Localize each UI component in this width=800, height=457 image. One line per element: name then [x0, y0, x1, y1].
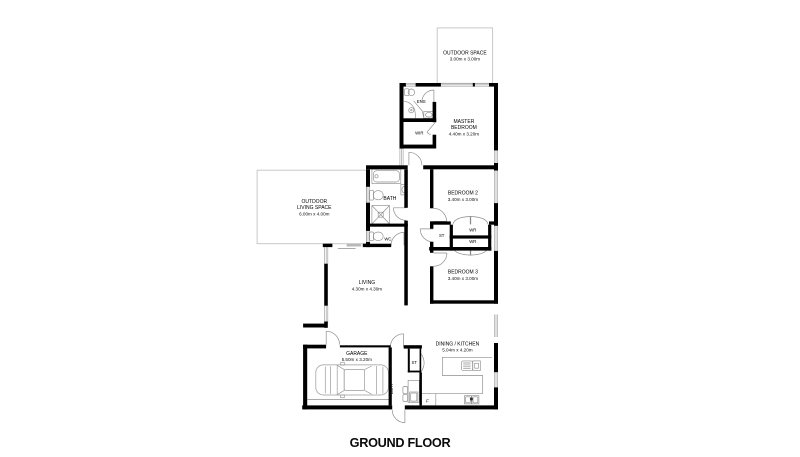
svg-text:5.04m x 4.20m: 5.04m x 4.20m [442, 347, 473, 352]
svg-text:BATH: BATH [383, 196, 396, 202]
svg-text:LDRY: LDRY [389, 383, 394, 395]
svg-text:4.40m x 3.20m: 4.40m x 3.20m [449, 132, 480, 137]
svg-text:OUTDOOR SPACE: OUTDOOR SPACE [443, 50, 487, 56]
svg-text:BEDROOM: BEDROOM [451, 125, 477, 131]
svg-text:LIVING SPACE: LIVING SPACE [297, 205, 332, 211]
svg-text:WR: WR [469, 239, 476, 244]
svg-text:BEDROOM 2: BEDROOM 2 [448, 191, 478, 197]
svg-text:3.00m x 3.00m: 3.00m x 3.00m [450, 57, 481, 62]
svg-text:ST: ST [439, 233, 445, 238]
svg-text:ENS: ENS [417, 99, 426, 104]
svg-text:GROUND FLOOR: GROUND FLOOR [350, 436, 451, 450]
svg-text:MASTER: MASTER [453, 119, 474, 125]
svg-text:WIR: WIR [415, 131, 423, 136]
svg-text:WC: WC [384, 236, 391, 241]
svg-text:6.00m x 4.00m: 6.00m x 4.00m [299, 211, 330, 216]
svg-text:4.30m x 4.30m: 4.30m x 4.30m [352, 286, 383, 291]
svg-text:GARAGE: GARAGE [346, 351, 368, 357]
svg-text:ST: ST [411, 360, 417, 365]
svg-text:F: F [426, 399, 429, 404]
svg-text:5.50m x 3.20m: 5.50m x 3.20m [342, 357, 373, 362]
svg-text:3.40m x 3.00m: 3.40m x 3.00m [448, 276, 479, 281]
svg-text:3.40m x 3.00m: 3.40m x 3.00m [448, 197, 479, 202]
svg-text:OUTDOOR: OUTDOOR [302, 199, 328, 205]
svg-text:BEDROOM 3: BEDROOM 3 [448, 270, 478, 276]
svg-text:LIVING: LIVING [359, 280, 376, 286]
svg-text:WR: WR [469, 228, 476, 233]
